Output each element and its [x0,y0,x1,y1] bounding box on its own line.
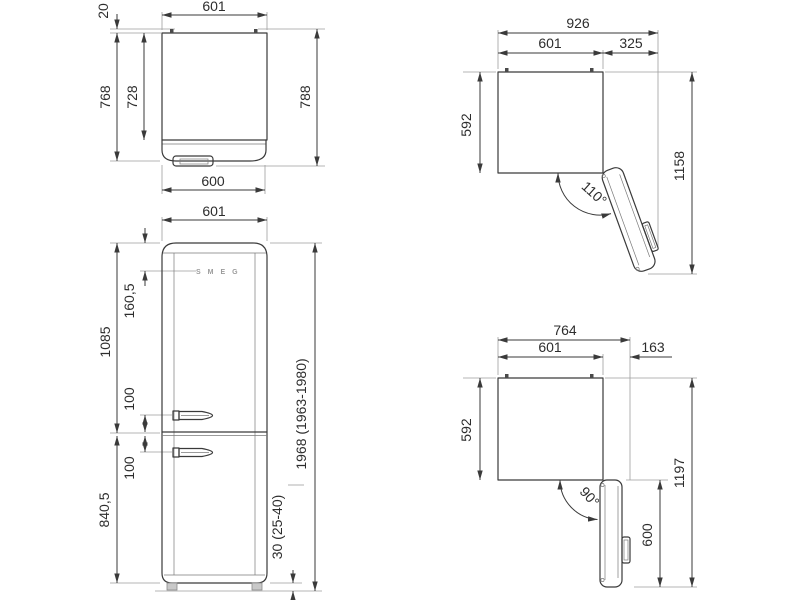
dim-lower-handle: 100 [121,436,145,480]
dim-label: 100 [121,456,137,480]
door-handle-inner [624,540,628,560]
dim-width: 601 [162,203,267,220]
angle-label: 90° [577,483,603,509]
dim-depth-overall: 788 [297,29,317,166]
dim-label: 100 [121,387,137,411]
dim-label: 20 [95,3,111,19]
lower-door-handle [173,448,213,457]
dim-label: 601 [538,339,562,355]
dim-overall-depth: 1158 [671,72,692,274]
dim-width-top: 601 [162,0,267,15]
dim-label: 163 [641,339,665,355]
dim-door-side: 325 [603,35,658,53]
dim-depth-with-door: 768 [97,33,117,161]
rear-spacer [590,374,594,378]
dim-body-depth: 592 [458,378,480,480]
dim-label: 601 [538,35,562,51]
door-open-90-view: 90° 764 601 163 592 600 1197 [458,322,697,587]
adjustable-foot [252,583,262,590]
dim-rear-gap: 20 [95,3,117,29]
dim-width-door: 600 [162,173,265,190]
door-handle [622,537,630,563]
dim-overall-width: 926 [498,15,658,33]
dim-upper-section: 1085 [97,243,117,433]
upper-door-handle [173,411,213,420]
door-outline [600,480,622,587]
rear-spacer [505,68,509,72]
cabinet-outline [498,72,603,173]
door-handle [642,221,659,252]
open-door-90 [600,480,630,587]
dim-label: 601 [202,0,226,14]
dim-label: 1197 [671,458,687,488]
open-door-110 [600,163,664,273]
dim-label: 1085 [97,326,113,357]
dim-overall-depth: 1197 [671,378,692,587]
dim-door-reach: 600 [639,480,660,587]
dim-body-width: 601 [498,35,603,53]
door-seam [607,177,639,265]
technical-drawing-canvas: 601 20 768 728 788 600 [0,0,800,600]
dim-body-depth: 592 [458,72,480,173]
dim-logo-from-top: 160,5 [121,228,145,319]
dim-label: 788 [297,85,313,109]
dim-label: 728 [124,85,140,109]
rear-spacer [254,29,258,33]
rear-spacer [590,68,594,72]
dim-label: 600 [639,523,655,547]
dim-label: 592 [458,113,474,137]
dim-label: 840,5 [96,492,112,527]
cabinet-outline [498,378,603,480]
dim-label: 764 [553,322,577,338]
dim-upper-handle: 100 [121,387,145,432]
front-view: SMEG 601 160,5 1085 [96,203,322,599]
angle-label: 110° [579,178,610,209]
hinge-pin [601,578,604,581]
dim-label: 926 [566,15,590,31]
dim-depth-body: 728 [124,33,144,140]
rear-spacer [505,374,509,378]
door-seam [620,174,650,257]
hinge-pin [601,483,604,486]
adjustable-foot [167,583,177,590]
dim-body-width: 601 [498,339,603,357]
door-outline [162,140,266,161]
brand-logo: SMEG [196,269,245,276]
dim-label: 600 [201,173,225,189]
dim-label: 30 (25-40) [269,495,285,560]
dim-label: 592 [458,418,474,442]
dim-label: 768 [97,85,113,109]
dim-label: 1968 (1963-1980) [293,358,309,469]
door-open-110-view: 110° 926 601 325 592 1158 [458,15,697,274]
dim-label: 601 [202,203,226,219]
dim-door-side: 163 [630,339,672,357]
cabinet-outline [162,243,267,583]
dimension-drawing: 601 20 768 728 788 600 [0,0,800,600]
top-view: 601 20 768 728 788 600 [95,0,325,194]
dim-overall-width: 764 [498,322,630,340]
dim-label: 160,5 [121,283,137,318]
dim-label: 1158 [671,151,687,181]
dim-label: 325 [619,35,643,51]
cabinet-outline [162,33,267,140]
dim-lower-section: 840,5 [96,436,117,583]
rear-spacer [170,29,174,33]
dim-overall-height: 1968 (1963-1980) [293,243,315,591]
